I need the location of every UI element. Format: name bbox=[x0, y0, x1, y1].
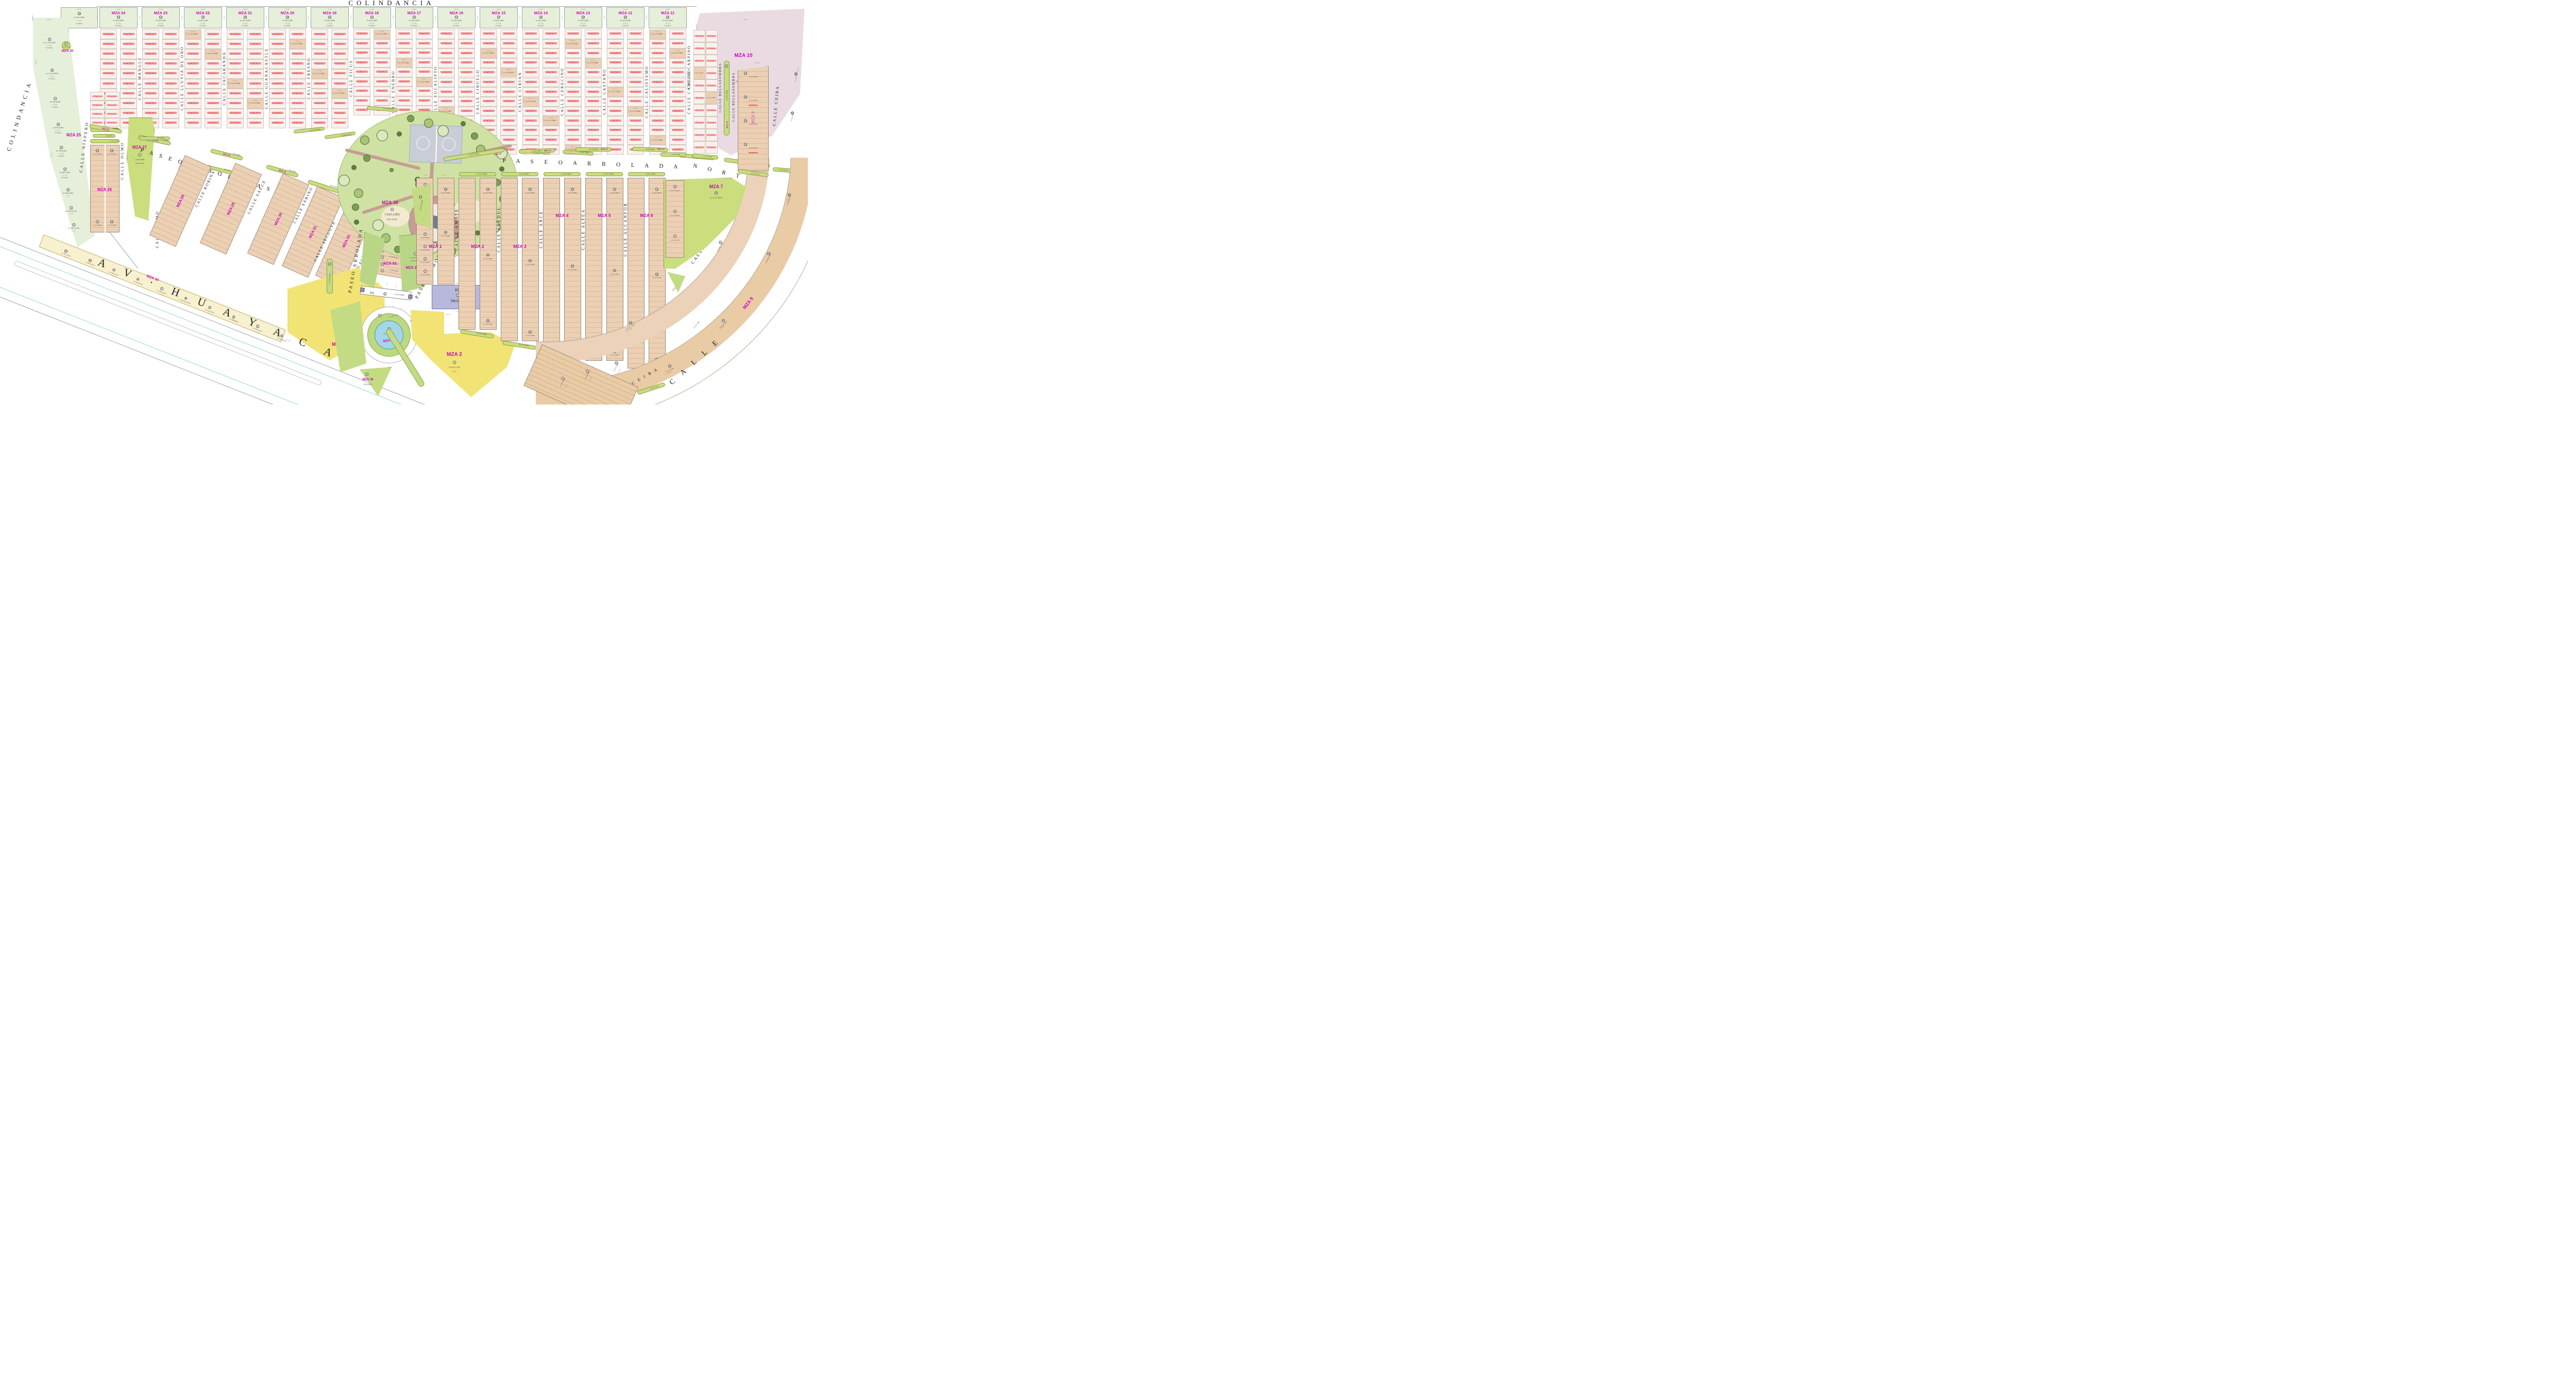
lot-dim: 15.30 bbox=[402, 59, 406, 61]
header-viv: 14 VIV. bbox=[538, 22, 544, 24]
lot-viv: 5 VIV. bbox=[72, 230, 76, 232]
lot-vendido-label: VENDIDO bbox=[694, 134, 704, 137]
block-title: MZA 20 bbox=[281, 11, 294, 15]
street-calle-bellasombra-2: CALLE BELLASOMBRA bbox=[732, 72, 736, 122]
lot-vendido-label: VENDIDO bbox=[545, 52, 557, 55]
lot-vendido-label: VENDIDO bbox=[525, 110, 537, 113]
street-CALLE EUCALIPTO: CALLE EUCALIPTO bbox=[433, 66, 438, 118]
lot-vendido-label: VENDIDO bbox=[165, 43, 177, 46]
park-tree bbox=[424, 119, 433, 128]
lot-vendido-label: VENDIDO bbox=[398, 99, 410, 103]
header-lot-circle: 17 bbox=[497, 15, 500, 19]
lot-vendido-label: VENDIDO bbox=[314, 82, 326, 86]
header-code: H.3.M.4. bbox=[411, 25, 417, 27]
park-tree bbox=[389, 168, 394, 172]
lot-vendido-label: VENDIDO bbox=[145, 53, 157, 56]
lot-area: A=110.16M2 bbox=[250, 102, 261, 104]
lot-vendido-label: VENDIDO bbox=[440, 81, 452, 84]
lot-vendido-label: VENDIDO bbox=[187, 82, 199, 86]
ring-circle: 4 bbox=[378, 314, 381, 317]
lot-vendido-label: VENDIDO bbox=[229, 112, 241, 115]
lot-vendido-label: VENDIDO bbox=[609, 42, 621, 45]
lot-vendido-label: VENDIDO bbox=[92, 104, 103, 106]
lot-vendido-label: VENDIDO bbox=[567, 81, 579, 84]
lot-vendido-label: VENDIDO bbox=[587, 81, 599, 84]
header-dim-side: 21.60 bbox=[308, 15, 310, 20]
lot-dim: 15.30 bbox=[549, 117, 553, 119]
block-title: MZA 36 bbox=[382, 200, 398, 205]
lot-dim: 15.30 bbox=[486, 49, 491, 52]
lot-vendido-label: VENDIDO bbox=[652, 120, 664, 123]
lot-circle: 16 bbox=[486, 188, 489, 191]
colindancia-top-label: COLINDANCIA bbox=[348, 0, 434, 7]
lot-vendido-label: VENDIDO bbox=[272, 122, 283, 125]
lot-vendido-label: VENDIDO bbox=[609, 81, 621, 84]
lot-vendido-label: VENDIDO bbox=[440, 91, 452, 94]
lot-vendido-label: VENDIDO bbox=[145, 33, 157, 36]
lot-vendido-label: VENDIDO bbox=[314, 53, 326, 56]
island-label: MZA 37 bbox=[657, 147, 665, 150]
header-code: H.3.M.4. bbox=[115, 25, 122, 27]
lot-area: A=110.16M2 bbox=[334, 92, 345, 94]
park-tree bbox=[354, 189, 363, 198]
lot-vendido-label: VENDIDO bbox=[292, 33, 303, 36]
island-area: A=339.36M2 bbox=[726, 90, 728, 101]
lot-vendido-label: VENDIDO bbox=[525, 42, 537, 45]
lot-vendido-label: VENDIDO bbox=[503, 91, 515, 94]
street-CALLE CASTAÑO: CALLE CASTAÑO bbox=[602, 69, 607, 114]
lot-dim-side: 7.20 bbox=[650, 32, 652, 36]
lot-vendido-label: VENDIDO bbox=[609, 71, 621, 74]
lot-dim-side: 7.20 bbox=[585, 61, 587, 65]
lot-vendido-label: VENDIDO bbox=[356, 80, 368, 83]
lot-vendido-label: VENDIDO bbox=[292, 62, 303, 65]
park-tree bbox=[377, 130, 388, 141]
lot-vendido-label: VENDIDO bbox=[314, 122, 326, 125]
lot-vendido-label: VENDIDO bbox=[292, 82, 303, 86]
strip-area: 192.98M2 bbox=[157, 137, 165, 139]
lot-vendido-label: VENDIDO bbox=[249, 33, 261, 36]
lot-dim: 15.30 bbox=[506, 69, 511, 71]
header-viv: 14 VIV. bbox=[327, 22, 332, 24]
lot-vendido-label: VENDIDO bbox=[165, 112, 177, 115]
header-dim-side: 21.60 bbox=[96, 15, 98, 20]
strip-area: A=142.38M2 bbox=[110, 140, 119, 142]
lot-circle: 10 bbox=[88, 259, 91, 262]
lot-vendido-label: VENDIDO bbox=[461, 71, 472, 74]
lot-circle: 10 bbox=[715, 191, 718, 194]
lot-dim: 15.30 bbox=[444, 107, 449, 109]
header-dim-side: 21.60 bbox=[265, 15, 267, 20]
dim-58: 58.10 bbox=[755, 62, 760, 64]
lot-vendido-label: VENDIDO bbox=[545, 81, 557, 84]
lot-vendido-label: VENDIDO bbox=[123, 43, 134, 46]
lot-dim-side: 7.20 bbox=[628, 109, 630, 113]
lot-vendido-label: VENDIDO bbox=[292, 112, 303, 115]
lot-dim: 15.30 bbox=[655, 136, 660, 138]
lot-vendido-label: VENDIDO bbox=[503, 81, 515, 84]
lot-area: A=112.46M2 bbox=[441, 235, 450, 237]
header-dim-top: 42.60 bbox=[77, 8, 82, 10]
park-tree bbox=[407, 115, 414, 122]
lot-vendido-label: VENDIDO bbox=[398, 71, 410, 74]
lot-vendido-label: VENDIDO bbox=[229, 102, 241, 105]
lot-vendido-label: VENDIDO bbox=[694, 122, 704, 124]
lot-vendido-label: VENDIDO bbox=[652, 110, 664, 113]
lot-vendido-label: VENDIDO bbox=[376, 80, 388, 83]
lot-vendido-label: VENDIDO bbox=[706, 35, 716, 38]
header-code: H.3.M.4. bbox=[580, 25, 586, 27]
lot-viv: 7 VIV. bbox=[69, 213, 73, 215]
lot-vendido-label: VENDIDO bbox=[207, 72, 219, 75]
lot-note: AREA VERDE bbox=[135, 162, 144, 164]
lot-vendido-label: VENDIDO bbox=[525, 91, 537, 94]
lot-vendido-label: VENDIDO bbox=[652, 100, 664, 103]
lot-vendido-label: VENDIDO bbox=[630, 129, 641, 132]
lot-circle: 4 bbox=[96, 220, 99, 223]
lot-circle: 33 bbox=[668, 364, 671, 367]
lot-vendido-label: VENDIDO bbox=[694, 109, 704, 112]
lot-vendido-label: VENDIDO bbox=[652, 91, 664, 94]
lot-vendido-label: VENDIDO bbox=[272, 43, 283, 46]
lot-vendido-label: VENDIDO bbox=[249, 62, 261, 65]
header-area: A=920.16M2 bbox=[367, 20, 378, 22]
lot-vendido-label: VENDIDO bbox=[314, 62, 326, 65]
lot-vendido-label: VENDIDO bbox=[334, 82, 346, 86]
lot-area: A=110.16M2 bbox=[707, 97, 716, 99]
lot-vendido-label: VENDIDO bbox=[706, 85, 716, 87]
lot-circle: 3 bbox=[423, 257, 427, 260]
lot-vendido-label: VENDIDO bbox=[461, 81, 472, 84]
lot-area: A=112.46M2 bbox=[483, 323, 493, 325]
lot-vendido-label: VENDIDO bbox=[483, 110, 495, 113]
lot-vendido-label: VENDIDO bbox=[461, 91, 472, 94]
lot-vendido-label: VENDIDO bbox=[376, 99, 388, 103]
lot-vendido-label: VENDIDO bbox=[483, 120, 495, 123]
lot-dim: 15.30 bbox=[253, 99, 258, 102]
park-tree bbox=[499, 166, 504, 172]
lot-vendido-label: VENDIDO bbox=[207, 112, 219, 115]
header-viv: 14 VIV. bbox=[369, 22, 375, 24]
lot-vendido-label: VENDIDO bbox=[461, 61, 472, 64]
lot-dim-d: 15.30 bbox=[442, 174, 447, 176]
lot-vendido-label: VENDIDO bbox=[525, 81, 537, 84]
lot-vendido-label: VENDIDO bbox=[103, 62, 114, 65]
lot-vendido-label: VENDIDO bbox=[567, 139, 579, 142]
gate-end-left bbox=[360, 288, 365, 292]
park-tree bbox=[352, 204, 359, 211]
lot-area: A=1,074.08M2 bbox=[46, 73, 58, 75]
lot-vendido-label: VENDIDO bbox=[229, 72, 241, 75]
lot-vendido-label: VENDIDO bbox=[207, 122, 219, 125]
lot-vendido-label: VENDIDO bbox=[525, 61, 537, 64]
lot-area: A=50.26M2 bbox=[61, 46, 70, 48]
gate-arrow-down-icon: ↓ bbox=[394, 283, 398, 289]
lot-dim-side: 7.20 bbox=[247, 102, 249, 105]
lot-vendido-label: VENDIDO bbox=[92, 112, 103, 115]
header-dim-side: 21.60 bbox=[519, 15, 521, 20]
lot-circle: 9 bbox=[423, 183, 427, 186]
lot-vendido-label: VENDIDO bbox=[187, 43, 199, 46]
lot-vendido-label: VENDIDO bbox=[229, 43, 241, 46]
lot-vendido-label: VENDIDO bbox=[587, 91, 599, 94]
lot-dim-side: 7.20 bbox=[670, 52, 672, 55]
lot-vendido-label: VENDIDO bbox=[545, 42, 557, 45]
lot-vendido-label: VENDIDO bbox=[334, 53, 346, 56]
lot-circle: 1 bbox=[453, 361, 456, 364]
lot-vendido-label: VENDIDO bbox=[587, 71, 599, 74]
lot-circle: 2 bbox=[423, 270, 427, 273]
lot-vendido-label: VENDIDO bbox=[145, 92, 157, 95]
header-code: H.3.M.4. bbox=[622, 25, 629, 27]
lot-area: A=110.16M2 bbox=[230, 82, 241, 85]
lot-dim-w: 7.35 bbox=[424, 174, 428, 176]
street-CALLE LLUVIA DE ORO: CALLE LLUVIA DE ORO bbox=[180, 46, 184, 111]
lot-vendido-label: VENDIDO bbox=[461, 52, 472, 55]
lot-vendido-label: VENDIDO bbox=[249, 53, 261, 56]
lot-area: A=157.87M2 bbox=[420, 261, 430, 263]
lot-vendido-label: VENDIDO bbox=[567, 129, 579, 132]
lot-vendido-label: VENDIDO bbox=[694, 97, 704, 99]
lot-area: A=667.22M2 bbox=[60, 172, 71, 174]
block-title: MZA 21 bbox=[239, 11, 252, 15]
lot-vendido-label: VENDIDO bbox=[545, 139, 557, 142]
lot-vendido-label: VENDIDO bbox=[165, 62, 177, 65]
header-dim-top: 42.60 bbox=[201, 8, 206, 10]
lot-vendido-label: VENDIDO bbox=[314, 102, 326, 105]
lot-circle: 5 bbox=[673, 210, 676, 213]
strip-area: 25.47M2 bbox=[106, 135, 113, 137]
lot-vendido-label: VENDIDO bbox=[672, 100, 684, 103]
lot-vendido-label: VENDIDO bbox=[652, 61, 664, 64]
lot-area: A=120.62M2 bbox=[749, 123, 758, 125]
lot-vendido-label: VENDIDO bbox=[672, 32, 684, 36]
lot-vendido-label: VENDIDO bbox=[187, 92, 199, 95]
lot-dim: 15.30 bbox=[380, 30, 384, 32]
lot-area: A=169.00M2 bbox=[420, 237, 430, 239]
lot-area: A=112.46M2 bbox=[483, 258, 493, 260]
lot-vendido-label: VENDIDO bbox=[376, 42, 388, 45]
lot-dim-side: 7.20 bbox=[185, 32, 187, 36]
lot-vendido-label: VENDIDO bbox=[545, 110, 557, 113]
lot-dim: 15.30 bbox=[571, 40, 575, 42]
lot-vendido-label: VENDIDO bbox=[694, 146, 704, 149]
lot-vendido-label: VENDIDO bbox=[706, 47, 716, 50]
lot-viv: 13 VIV. bbox=[56, 129, 61, 131]
header-dim-top: 42.60 bbox=[454, 8, 459, 10]
lot-vendido-label: VENDIDO bbox=[525, 139, 537, 142]
lot-vendido-label: VENDIDO bbox=[398, 32, 410, 36]
lot-circle: 1 bbox=[72, 223, 75, 226]
dim-top: 86.23 bbox=[743, 19, 748, 21]
lot-area: A=110.16M2 bbox=[610, 91, 621, 93]
street-CALLE GUANACASTLE: CALLE GUANACASTLE bbox=[264, 48, 269, 109]
lot-vendido-label: VENDIDO bbox=[314, 92, 326, 95]
lot-vendido-label: VENDIDO bbox=[525, 32, 537, 36]
street-calle-bellasombra: CALLE BELLASOMBRA bbox=[719, 63, 722, 112]
lot-vendido-label: VENDIDO bbox=[652, 42, 664, 45]
lot-vendido-label: VENDIDO bbox=[630, 42, 641, 45]
lot-vendido-label: VENDIDO bbox=[461, 100, 472, 103]
lot-circle: 5 bbox=[423, 232, 427, 236]
lot-vendido-label: VENDIDO bbox=[165, 82, 177, 86]
lot-circle: 2 bbox=[381, 262, 384, 265]
lot-vendido-label: VENDIDO bbox=[334, 43, 346, 46]
lot-vendido-label: VENDIDO bbox=[249, 92, 261, 95]
lot-area: A=110.16M2 bbox=[672, 52, 683, 54]
lot-area: A=110.16M2 bbox=[670, 190, 680, 192]
lot-vendido-label: VENDIDO bbox=[272, 33, 283, 36]
lot-vendido-label: VENDIDO bbox=[630, 32, 641, 36]
lot-vendido-label: VENDIDO bbox=[545, 61, 557, 64]
lot-vendido-label: VENDIDO bbox=[145, 43, 157, 46]
street-CALLE CERECINO: CALLE CERECINO bbox=[560, 68, 565, 116]
header-area: A=920.16M2 bbox=[74, 16, 85, 19]
lot-vendido-label: VENDIDO bbox=[483, 91, 495, 94]
header-area: A=920.16M2 bbox=[240, 20, 251, 22]
lot-vendido-label: VENDIDO bbox=[672, 120, 684, 123]
lot-dim-side: 7.20 bbox=[501, 71, 503, 74]
header-lot-circle: 16 bbox=[539, 15, 543, 19]
gate-circle: 3 bbox=[383, 292, 386, 295]
lot-area: A=110.16M2 bbox=[188, 33, 198, 35]
header-lot-circle: 13 bbox=[413, 15, 416, 19]
lot-vendido-label: VENDIDO bbox=[418, 71, 430, 74]
lot-code: H.3.M.4. bbox=[46, 47, 53, 49]
lot-vendido-label: VENDIDO bbox=[706, 72, 716, 75]
lot-circle: 13 bbox=[96, 149, 99, 152]
lot-vendido-label: VENDIDO bbox=[483, 32, 495, 36]
colindancia-left-label: COLINDANCIA bbox=[6, 80, 33, 152]
header-area: A=920.16M2 bbox=[409, 20, 420, 22]
lot-vendido-label: VENDIDO bbox=[630, 100, 641, 103]
header-dim-top: 42.60 bbox=[370, 8, 375, 10]
lot-dim: 15.30 bbox=[571, 146, 575, 148]
lot-area: A=110.16M2 bbox=[546, 120, 556, 122]
block-title: MZA 26 bbox=[97, 188, 112, 192]
street-CALLE ENEBRO: CALLE ENEBRO bbox=[391, 71, 396, 113]
lot-dim: 15.30 bbox=[529, 97, 533, 99]
lot-vendido-label: VENDIDO bbox=[229, 62, 241, 65]
court-circle-1 bbox=[416, 137, 430, 150]
block-col-left bbox=[501, 178, 518, 341]
lot-vendido-label: VENDIDO bbox=[672, 139, 684, 142]
eq-dim-bottom2: 33.54 bbox=[446, 313, 451, 315]
lot-vendido-label: VENDIDO bbox=[630, 91, 641, 94]
lot-vendido-label: VENDIDO bbox=[503, 52, 515, 55]
lot-circle: 2 bbox=[70, 206, 73, 209]
lot-vendido-label: VENDIDO bbox=[440, 42, 452, 45]
lot-circle: 8 bbox=[50, 69, 54, 72]
lot-vendido-label: VENDIDO bbox=[165, 53, 177, 56]
header-lot-circle: 17 bbox=[455, 15, 458, 19]
header-lot-circle: 10 bbox=[78, 12, 81, 15]
lot-circle: 70 bbox=[744, 95, 747, 98]
header-dim-top: 42.60 bbox=[666, 8, 670, 10]
lot-circle: 1 bbox=[138, 153, 141, 156]
block-title: MZA 13 bbox=[577, 11, 590, 15]
header-code: H.3.M.4. bbox=[284, 25, 291, 27]
lot-vendido-label: VENDIDO bbox=[356, 61, 368, 64]
lot-vendido-label: VENDIDO bbox=[272, 72, 283, 75]
lot-vendido-label: VENDIDO bbox=[525, 129, 537, 132]
lot-vendido-label: VENDIDO bbox=[525, 52, 537, 55]
lot-vendido-label: VENDIDO bbox=[187, 102, 199, 105]
lot-vendido-label: VENDIDO bbox=[418, 32, 430, 36]
lot-vendido-label: VENDIDO bbox=[376, 90, 388, 93]
lot-vendido-label: VENDIDO bbox=[356, 109, 368, 112]
block-title: MZA 36 bbox=[362, 378, 373, 381]
lot-vendido-label: VENDIDO bbox=[314, 112, 326, 115]
court-circle-2 bbox=[442, 137, 456, 151]
lot-vendido-label: VENDIDO bbox=[165, 72, 177, 75]
header-viv: 14 VIV. bbox=[496, 22, 501, 24]
lot-circle: 5 bbox=[60, 146, 63, 149]
lot-vendido-label: VENDIDO bbox=[461, 42, 472, 45]
street-calle-carpino: CALLE CARPINO bbox=[687, 45, 691, 89]
lot-vendido-label: VENDIDO bbox=[706, 122, 716, 124]
strip-area: A=114.36M2 bbox=[671, 154, 681, 156]
lot-viv: 8 VIV. bbox=[66, 195, 70, 197]
lot-vendido-label: VENDIDO bbox=[107, 121, 117, 124]
lot-vendido-label: VENDIDO bbox=[525, 120, 537, 123]
lot-dim-side: 7.20 bbox=[607, 90, 609, 94]
block-title: MZA 23 bbox=[154, 11, 167, 15]
lot-dim: 15.30 bbox=[337, 90, 342, 92]
lot-viv: 12 VIV. bbox=[59, 153, 64, 155]
lot-vendido-label: VENDIDO bbox=[398, 80, 410, 83]
gate-eq-label: EQ bbox=[370, 292, 375, 295]
lot-vendido-label: VENDIDO bbox=[567, 52, 579, 55]
lot-vendido-label: VENDIDO bbox=[165, 92, 177, 95]
lot-area: A=129.87M2 bbox=[749, 147, 758, 149]
park-tree bbox=[363, 155, 370, 162]
lot-vendido-label: VENDIDO bbox=[334, 72, 346, 75]
lot-vendido-label: VENDIDO bbox=[272, 102, 283, 105]
park-tree bbox=[360, 136, 369, 145]
lot-vendido-label: VENDIDO bbox=[609, 129, 621, 132]
lot-vendido-label: VENDIDO bbox=[609, 52, 621, 55]
lot-vendido-label: VENDIDO bbox=[398, 42, 410, 45]
wedge-circle: 22 bbox=[419, 195, 422, 198]
street-calle-olmo: CALLE OLMO bbox=[120, 142, 125, 179]
lot-vendido-label: VENDIDO bbox=[672, 91, 684, 94]
header-lot-circle: 13 bbox=[370, 15, 374, 19]
lot-vendido-label: VENDIDO bbox=[249, 82, 261, 86]
street-CALLE MANGLE: CALLE MANGLE bbox=[138, 57, 142, 100]
lot-vendido-label: VENDIDO bbox=[123, 72, 134, 75]
header-lot-circle: 16 bbox=[244, 15, 247, 19]
header-viv: 14 VIV. bbox=[116, 22, 121, 24]
header-dim-top: 42.60 bbox=[539, 8, 544, 10]
mza7-lot-col bbox=[666, 180, 684, 258]
lot-vendido-label: VENDIDO bbox=[567, 110, 579, 113]
lot-area: 1,509.56M2 bbox=[135, 159, 145, 161]
lot-vendido-label: VENDIDO bbox=[545, 100, 557, 103]
lot-vendido-label: VENDIDO bbox=[609, 32, 621, 36]
lot-vendido-label: VENDIDO bbox=[376, 61, 388, 64]
header-viv: 14 VIV. bbox=[412, 22, 417, 24]
header-viv: 14 VIV. bbox=[623, 22, 628, 24]
lot-dim: 15.30 bbox=[317, 70, 322, 72]
lot-dim-side: 7.20 bbox=[374, 32, 376, 36]
lot-vendido-label: VENDIDO bbox=[525, 71, 537, 74]
header-lot-circle: 16 bbox=[582, 15, 585, 19]
header-dim-side: 21.60 bbox=[434, 15, 436, 20]
lot-vendido-label: VENDIDO bbox=[272, 112, 283, 115]
block-title: MZA 10 bbox=[734, 53, 752, 59]
lot-vendido-label: VENDIDO bbox=[749, 104, 758, 107]
